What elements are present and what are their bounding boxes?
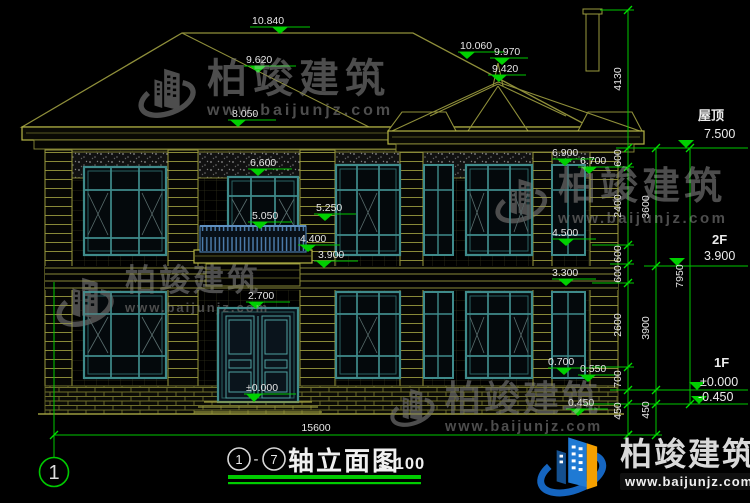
level-roof-label: 屋顶 <box>698 108 724 123</box>
marker-label: 0.450 <box>568 397 594 409</box>
level-2f-label: 2F <box>712 232 727 247</box>
window-1f-left <box>84 292 166 378</box>
chimney <box>583 9 602 71</box>
marker-label: 6.700 <box>580 155 606 167</box>
marker-label: 3.900 <box>318 249 344 261</box>
dim-text: 3900 <box>640 316 652 340</box>
window-2f-narrow-1 <box>424 165 453 255</box>
dim-text: 700 <box>612 370 624 388</box>
marker-label: 5.250 <box>316 202 342 214</box>
title-axis-start: 1 <box>235 452 242 467</box>
dim-text: 450 <box>640 401 652 419</box>
window-2f-center <box>336 165 400 255</box>
storey-levels: 屋顶 7.500 2F 3.900 1F ±0.000 -0.450 <box>698 108 738 404</box>
dim-text: 450 <box>612 402 624 420</box>
cad-elevation-drawing: 10.840 9.620 8.050 10.060 9.970 9.420 6.… <box>0 0 750 503</box>
marker-label: 6.900 <box>552 147 578 159</box>
marker-label: 4.500 <box>552 227 578 239</box>
dim-text: 600 <box>612 149 624 167</box>
window-1f-narrow-1 <box>424 292 453 378</box>
marker-label: 8.050 <box>232 108 258 120</box>
marker-label: 5.050 <box>252 210 278 222</box>
marker-label: 10.840 <box>252 15 284 27</box>
title-scale: 1:100 <box>378 455 425 473</box>
marker-label: 0.700 <box>548 356 574 368</box>
dim-text: 4130 <box>612 67 624 91</box>
marker-label: 0.550 <box>580 363 606 375</box>
dim-text: 3600 <box>640 195 652 219</box>
marker-label: 9.970 <box>494 46 520 58</box>
marker-label: 2.700 <box>248 290 274 302</box>
plinth <box>38 386 624 414</box>
drawing-canvas: 10.840 9.620 8.050 10.060 9.970 9.420 6.… <box>0 0 750 503</box>
window-2f-right-wide <box>466 165 532 255</box>
axis-bubble-number: 1 <box>48 462 59 484</box>
marker-label: 3.300 <box>552 267 578 279</box>
marker-label: 6.600 <box>250 157 276 169</box>
dim-text: 600 <box>612 265 624 283</box>
marker-label: 9.620 <box>246 54 272 66</box>
level-1f-label: 1F <box>714 355 729 370</box>
dim-text: 600 <box>612 245 624 263</box>
window-1f-right-wide <box>466 292 532 378</box>
marker-label: 9.420 <box>492 63 518 75</box>
total-width-dim: 15600 <box>301 422 330 434</box>
drawing-title: 1 - 7 轴立面图 1:100 <box>228 446 425 484</box>
window-2f-left <box>84 167 166 255</box>
dim-text: 2400 <box>612 194 624 218</box>
balcony-corbel <box>206 264 300 286</box>
dim-text: 7950 <box>674 264 686 288</box>
floor-band <box>45 266 618 290</box>
title-underline-thin <box>228 482 421 484</box>
level-roof-value: 7.500 <box>704 127 735 141</box>
window-1f-center <box>336 292 400 378</box>
title-dash: - <box>254 451 259 468</box>
level-2f-value: 3.900 <box>704 249 735 263</box>
balcony <box>194 226 312 286</box>
marker-label: 10.060 <box>460 40 492 52</box>
level-1f-value: ±0.000 <box>700 375 738 389</box>
title-axis-end: 7 <box>270 452 277 467</box>
dim-text: 2600 <box>612 313 624 337</box>
title-underline-thick <box>228 475 421 479</box>
marker-label: 4.400 <box>300 233 326 245</box>
axis-bubble-1: 1 <box>40 458 69 487</box>
marker-label: ±0.000 <box>246 382 278 394</box>
level-ground-value: -0.450 <box>698 390 733 404</box>
